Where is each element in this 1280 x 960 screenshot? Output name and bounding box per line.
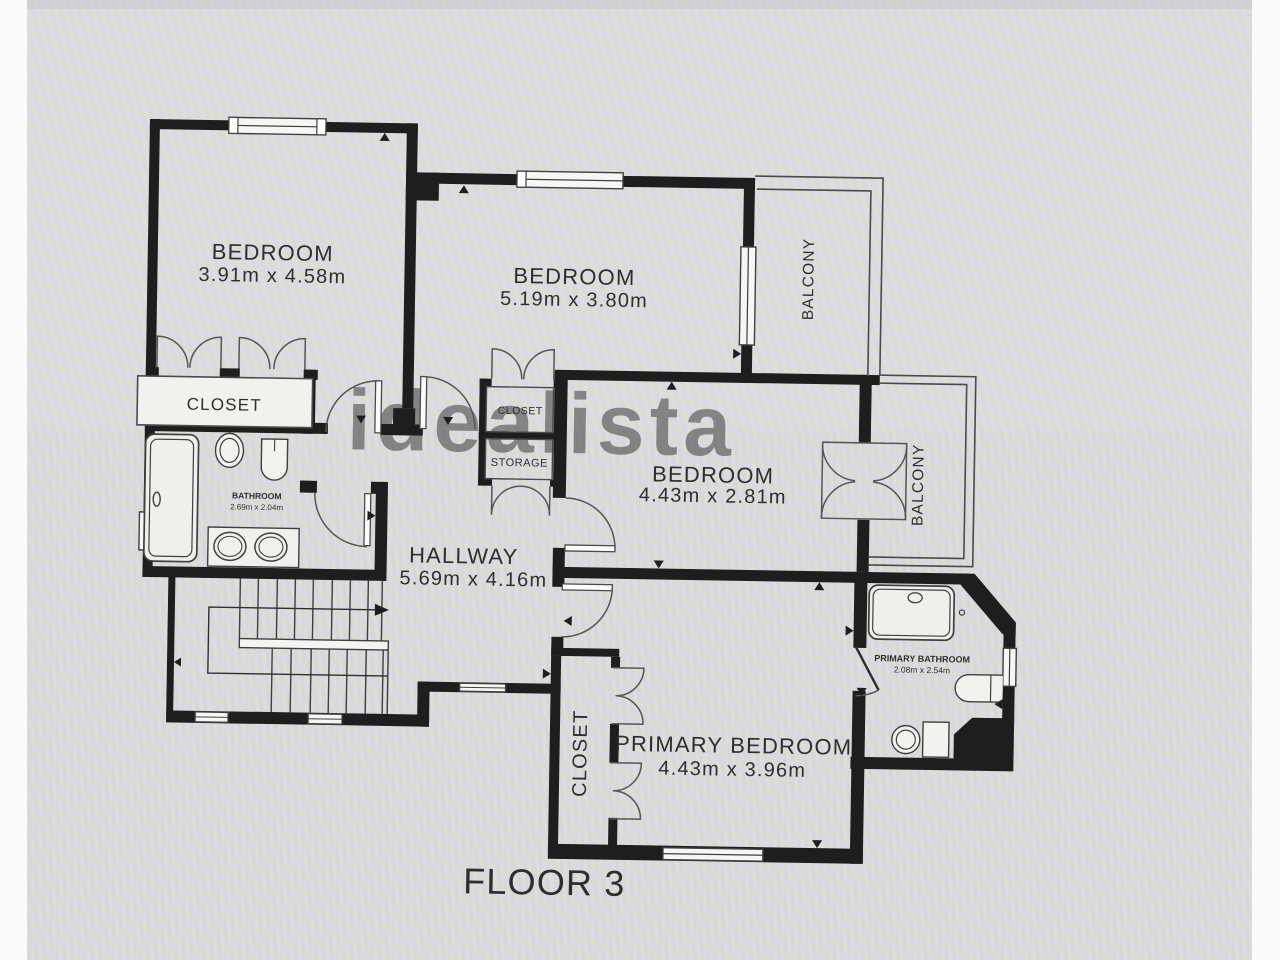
svg-text:4.43m x 3.96m: 4.43m x 3.96m xyxy=(658,758,806,782)
svg-text:PRIMARY BATHROOM: PRIMARY BATHROOM xyxy=(874,653,970,665)
svg-text:5.19m x 3.80m: 5.19m x 3.80m xyxy=(500,288,648,312)
svg-text:2.69m x 2.04m: 2.69m x 2.04m xyxy=(230,502,283,512)
svg-text:STORAGE: STORAGE xyxy=(491,457,548,470)
svg-text:BALCONY: BALCONY xyxy=(800,238,818,321)
svg-text:FLOOR 3: FLOOR 3 xyxy=(463,860,626,904)
svg-text:BEDROOM: BEDROOM xyxy=(513,263,635,290)
svg-text:2.08m x 2.54m: 2.08m x 2.54m xyxy=(894,664,950,675)
svg-text:CLOSET: CLOSET xyxy=(569,709,592,797)
svg-text:BEDROOM: BEDROOM xyxy=(212,239,334,266)
svg-text:BATHROOM: BATHROOM xyxy=(232,490,282,501)
svg-text:BALCONY: BALCONY xyxy=(909,443,927,526)
svg-text:3.91m x 4.58m: 3.91m x 4.58m xyxy=(198,264,346,288)
svg-text:HALLWAY: HALLWAY xyxy=(409,542,519,569)
svg-text:5.69m x 4.16m: 5.69m x 4.16m xyxy=(399,567,547,591)
svg-text:CLOSET: CLOSET xyxy=(187,395,263,415)
svg-text:PRIMARY BEDROOM: PRIMARY BEDROOM xyxy=(615,731,853,760)
svg-text:CLOSET: CLOSET xyxy=(498,405,543,418)
svg-text:4.43m x 2.81m: 4.43m x 2.81m xyxy=(639,484,787,508)
